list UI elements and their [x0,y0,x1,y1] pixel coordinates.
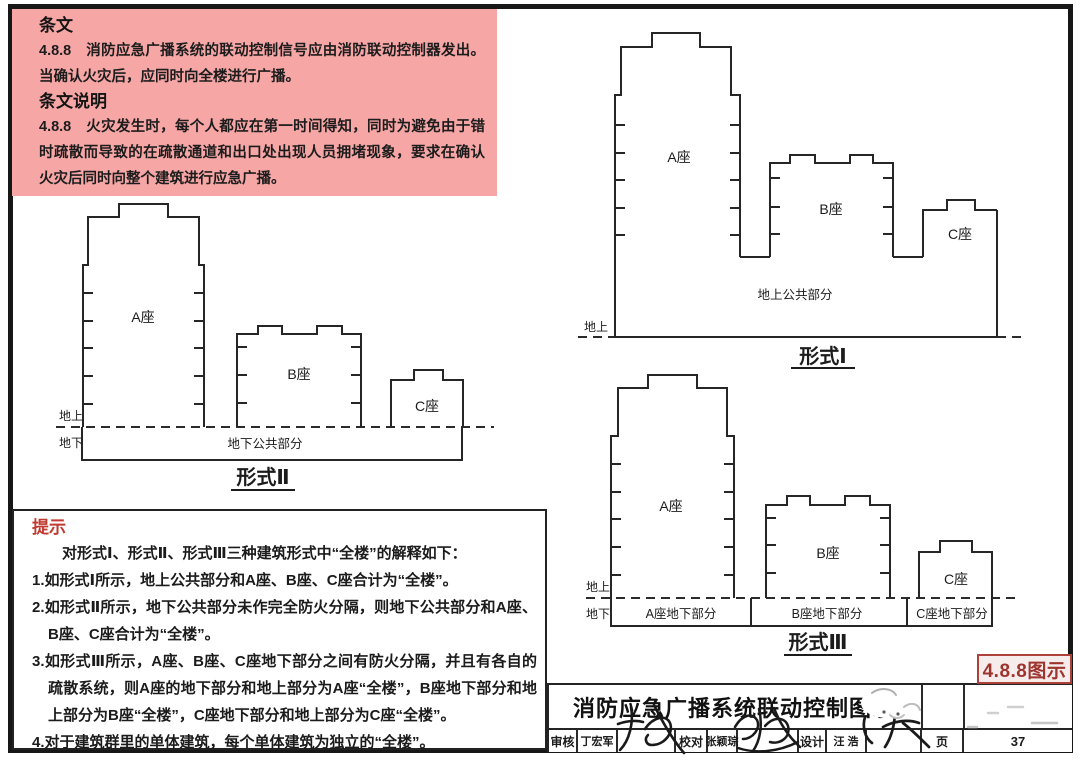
podium-outline [615,210,997,337]
form1-diagram: A座 B座 C座 地上公共部分 地上 形式Ⅰ [560,10,1080,370]
tower-a-label: A座 [131,309,154,325]
tip-item-4: 4.对于建筑群里的单体建筑，每个单体建筑为独立的“全楼”。 [32,729,537,756]
tower-b-label: B座 [816,545,839,561]
tower-c-label: C座 [948,226,972,242]
designer-signature-cell [867,730,922,752]
tower-a-outline [615,33,740,257]
above-ground-label: 地上 [584,320,608,334]
form3-title: 形式Ⅲ [789,631,848,654]
tower-c-outline [919,541,992,598]
tower-a-label: A座 [667,149,690,165]
podium-label: 地上公共部分 [757,287,832,302]
page-label: 页 [922,730,964,752]
basement-a-label: A座地下部分 [646,606,717,621]
floor-ticks [611,464,890,575]
reviewer-signature-cell [618,730,676,752]
tip-item-2: 2.如形式Ⅱ所示，地下公共部分未作完全防火分隔，则地下公共部分和A座、B座、C座… [32,594,537,648]
sheet-title: 消防应急广播系统联动控制图示 [573,685,895,728]
tower-c-label: C座 [415,398,439,414]
form1-title: 形式Ⅰ [799,345,846,368]
tower-b-label: B座 [819,201,842,217]
basement-c-label: C座地下部分 [916,606,988,621]
reviewer-name: 丁宏军 [578,730,618,752]
atlas-page: 条文 4.8.8 消防应急广播系统的联动控制信号应由消防联动控制器发出。当确认火… [0,0,1080,761]
designer-name: 汪 浩 [827,730,867,752]
tip-box: 提示 对形式Ⅰ、形式Ⅱ、形式Ⅲ三种建筑形式中“全楼”的解释如下： 1.如形式Ⅰ所… [12,509,547,750]
provision-heading: 条文 [39,14,485,38]
below-ground-label: 地下 [586,607,610,621]
tip-item-1: 1.如形式Ⅰ所示，地上公共部分和A座、B座、C座合计为“全楼”。 [32,567,537,594]
tip-heading: 提示 [32,515,537,540]
proofreader-name: 张颖琮 [708,730,738,752]
tip-item-3: 3.如形式Ⅲ所示，A座、B座、C座地下部分之间有防火分隔，并且有各自的疏散系统，… [32,648,537,729]
title-row-divider-2 [963,685,965,728]
form2-title: 形式Ⅱ [236,466,289,489]
form3-diagram: A座 B座 C座 地上 地下 A座地下部分 B座地下部分 C座地下部分 形式Ⅲ [560,370,1080,660]
above-ground-label: 地上 [586,580,610,594]
page-number: 37 [964,730,1072,752]
tip-intro: 对形式Ⅰ、形式Ⅱ、形式Ⅲ三种建筑形式中“全楼”的解释如下： [32,540,537,567]
floor-ticks [615,125,893,235]
form2-diagram: A座 B座 C座 地上 地下 地下公共部分 形式Ⅱ [30,195,550,500]
basement-b-label: B座地下部分 [792,606,863,621]
provision-note-paragraph: 4.8.8 火灾发生时，每个人都应在第一时间得知，同时为避免由于错时疏散而导致的… [39,114,485,192]
provision-note-heading: 条文说明 [39,90,485,114]
proof-label: 校对 [676,730,708,752]
above-ground-label: 地上 [59,409,83,423]
proofreader-signature-cell [738,730,799,752]
floor-ticks [83,293,361,404]
tower-b-label: B座 [287,366,310,382]
provision-box: 条文 4.8.8 消防应急广播系统的联动控制信号应由消防联动控制器发出。当确认火… [12,9,497,196]
title-block-title-row: 消防应急广播系统联动控制图示 [549,685,1072,728]
title-block-people-row: 审核 丁宏军 校对 张颖琮 设计 汪 浩 页 37 [549,728,1072,752]
basement-label: 地下公共部分 [227,436,302,451]
review-label: 审核 [549,730,578,752]
below-ground-label: 地下 [59,436,83,450]
tower-a-label: A座 [659,498,682,514]
title-block: 消防应急广播系统联动控制图示 审核 丁宏军 校对 张颖琮 设计 汪 浩 页 37 [547,683,1072,752]
provision-paragraph: 4.8.8 消防应急广播系统的联动控制信号应由消防联动控制器发出。当确认火灾后，… [39,38,485,90]
design-label: 设计 [799,730,827,752]
figure-tag: 4.8.8图示 [977,654,1072,684]
title-row-divider-1 [921,685,923,728]
tower-c-label: C座 [944,571,968,587]
tower-a-outline [611,375,734,598]
